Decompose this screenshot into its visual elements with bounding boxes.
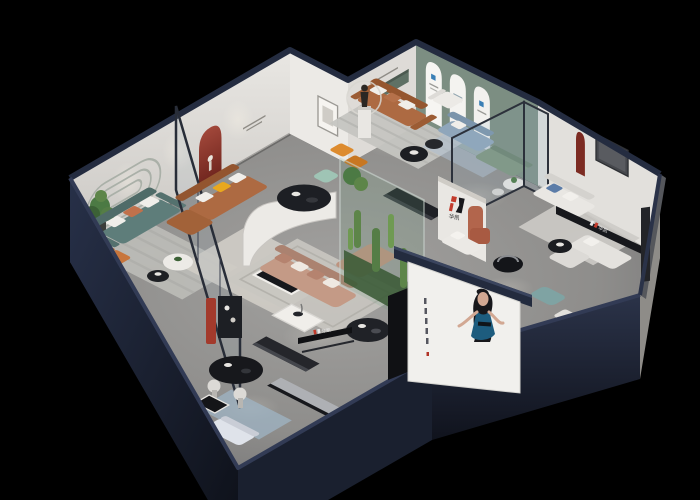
red-arch-niche-right <box>576 130 585 177</box>
showroom-scene: 华凯 <box>0 0 700 500</box>
display-turntable <box>493 256 523 273</box>
round-display-table <box>346 318 390 342</box>
showroom-render: 华凯 <box>0 0 700 500</box>
red-slim-cabinet <box>206 296 242 344</box>
black-coffee-table-right <box>548 239 572 253</box>
poster-side-kiosk <box>388 288 408 380</box>
